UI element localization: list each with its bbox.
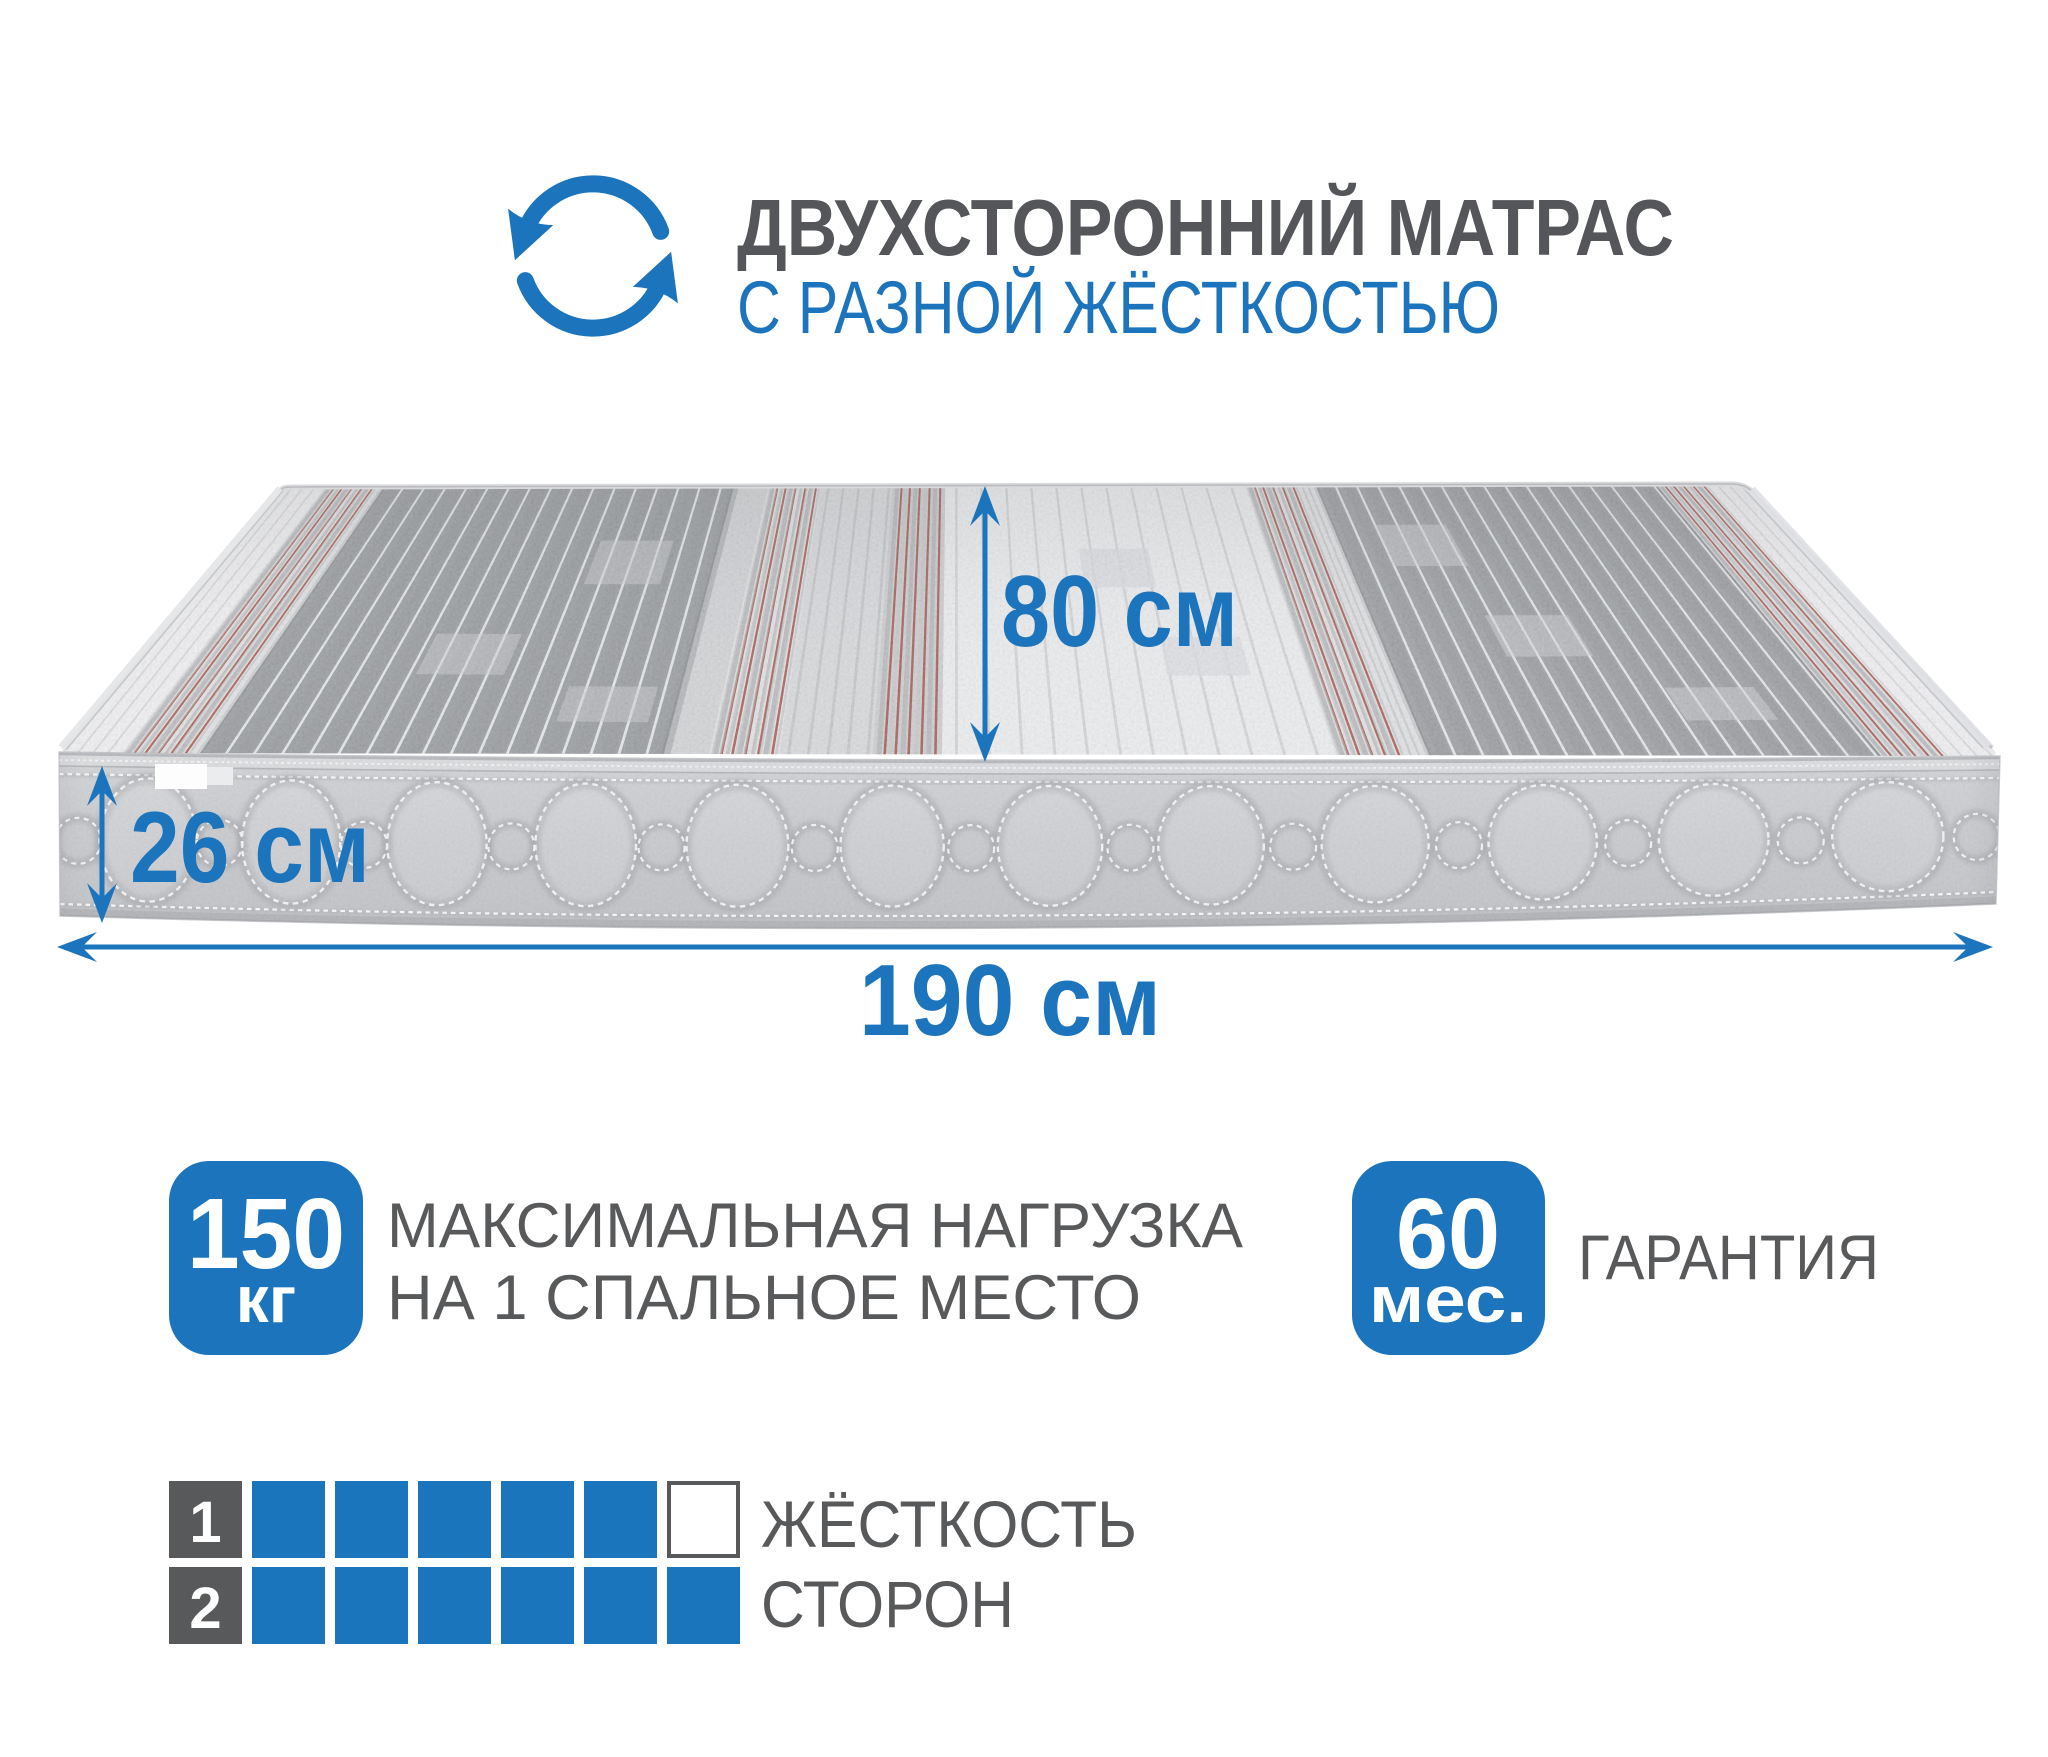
svg-text:ГАРАНТИЯ: ГАРАНТИЯ	[1578, 1223, 1879, 1293]
svg-text:80 см: 80 см	[1001, 556, 1238, 668]
svg-text:2: 2	[189, 1576, 221, 1641]
svg-text:кг: кг	[236, 1262, 297, 1336]
svg-text:1: 1	[189, 1490, 221, 1555]
svg-text:С РАЗНОЙ ЖЁСТКОСТЬЮ: С РАЗНОЙ ЖЁСТКОСТЬЮ	[737, 266, 1500, 349]
svg-text:мес.: мес.	[1369, 1262, 1527, 1336]
svg-text:СТОРОН: СТОРОН	[761, 1567, 1014, 1641]
svg-text:НА 1 СПАЛЬНОЕ МЕСТО: НА 1 СПАЛЬНОЕ МЕСТО	[387, 1263, 1141, 1333]
svg-text:ДВУХСТОРОННИЙ МАТРАС: ДВУХСТОРОННИЙ МАТРАС	[737, 182, 1674, 272]
svg-text:26 см: 26 см	[130, 792, 370, 904]
svg-text:МАКСИМАЛЬНАЯ НАГРУЗКА: МАКСИМАЛЬНАЯ НАГРУЗКА	[387, 1191, 1243, 1261]
svg-text:ЖЁСТКОСТЬ: ЖЁСТКОСТЬ	[761, 1487, 1137, 1561]
svg-text:190 см: 190 см	[859, 945, 1161, 1057]
